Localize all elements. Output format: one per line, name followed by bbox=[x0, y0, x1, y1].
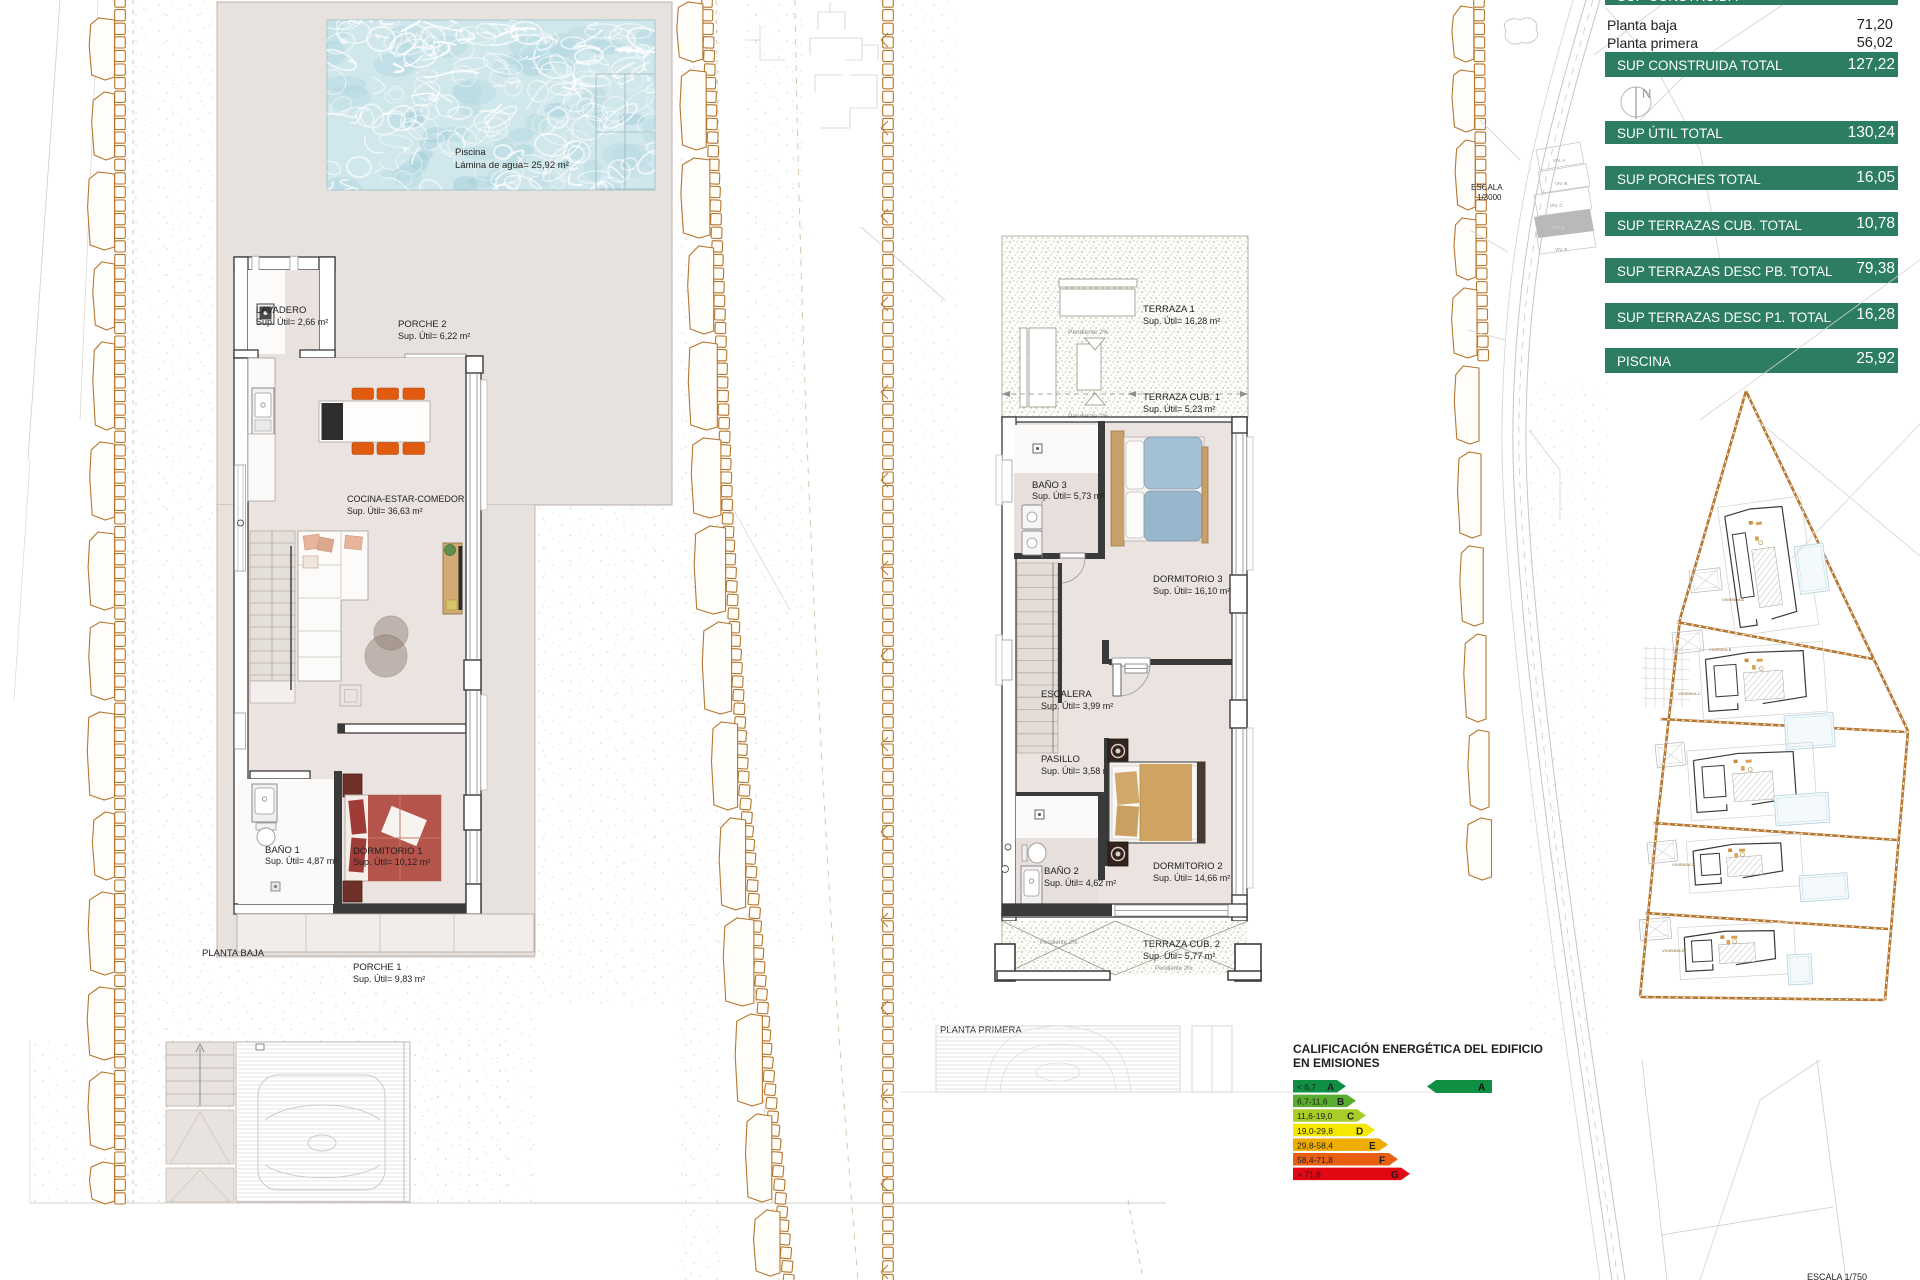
svg-text:56,02: 56,02 bbox=[1857, 35, 1893, 51]
svg-text:DORMITORIO 1: DORMITORIO 1 bbox=[353, 846, 423, 857]
svg-text:VIV. A: VIV. A bbox=[1553, 158, 1565, 163]
svg-text:E: E bbox=[1369, 1141, 1376, 1152]
svg-text:16,28: 16,28 bbox=[1856, 306, 1895, 323]
svg-text:< 6,7: < 6,7 bbox=[1297, 1082, 1316, 1092]
svg-text:Lámina de agua= 25,92 m²: Lámina de agua= 25,92 m² bbox=[455, 160, 569, 171]
svg-text:Planta primera: Planta primera bbox=[1607, 35, 1698, 51]
svg-text:SUP PORCHES TOTAL: SUP PORCHES TOTAL bbox=[1617, 172, 1761, 187]
svg-text:Pendiente 2%: Pendiente 2% bbox=[1040, 940, 1078, 946]
svg-text:EN EMISIONES: EN EMISIONES bbox=[1293, 1056, 1380, 1070]
svg-text:TERRAZA CUB. 2: TERRAZA CUB. 2 bbox=[1143, 939, 1220, 950]
svg-text:A: A bbox=[1478, 1083, 1485, 1094]
svg-text:SUP CONSTRUIDA TOTAL: SUP CONSTRUIDA TOTAL bbox=[1617, 58, 1783, 73]
svg-text:Sup. Útil= 5,23 m²: Sup. Útil= 5,23 m² bbox=[1143, 404, 1215, 414]
svg-text:Sup. Útil= 3,99 m²: Sup. Útil= 3,99 m² bbox=[1041, 701, 1113, 711]
svg-text:SUP TERRAZAS DESC P1. TOTAL: SUP TERRAZAS DESC P1. TOTAL bbox=[1617, 310, 1832, 325]
svg-text:VIVIENDA C: VIVIENDA C bbox=[1678, 691, 1701, 696]
svg-text:ESCALA: ESCALA bbox=[1471, 183, 1503, 192]
svg-text:Sup. Útil= 16,28 m²: Sup. Útil= 16,28 m² bbox=[1143, 316, 1220, 326]
svg-text:N: N bbox=[1642, 86, 1651, 101]
svg-text:19,0-29,8: 19,0-29,8 bbox=[1297, 1126, 1333, 1136]
svg-text:C: C bbox=[1347, 1112, 1354, 1123]
svg-text:Planta baja: Planta baja bbox=[1607, 17, 1677, 33]
svg-text:Sup. Útil= 3,58 m²: Sup. Útil= 3,58 m² bbox=[1041, 766, 1113, 776]
svg-text:VIV. D: VIV. D bbox=[1552, 225, 1565, 230]
svg-text:BAÑO 3: BAÑO 3 bbox=[1032, 480, 1067, 491]
svg-text:127,22: 127,22 bbox=[1848, 56, 1895, 73]
svg-text:Sup. Útil= 5,77 m²: Sup. Útil= 5,77 m² bbox=[1143, 951, 1215, 961]
svg-text:Sup. Útil= 9,83 m²: Sup. Útil= 9,83 m² bbox=[353, 974, 425, 984]
svg-text:D: D bbox=[1356, 1126, 1363, 1137]
svg-text:Sup. Útil= 6,22 m²: Sup. Útil= 6,22 m² bbox=[398, 331, 470, 341]
svg-text:> 71,8: > 71,8 bbox=[1297, 1170, 1321, 1180]
svg-text:29,8-58,4: 29,8-58,4 bbox=[1297, 1140, 1333, 1150]
svg-text:Pendiente 2%: Pendiente 2% bbox=[1155, 966, 1193, 972]
svg-text:Piscina: Piscina bbox=[455, 147, 486, 158]
svg-text:VIV. B: VIV. B bbox=[1555, 181, 1567, 186]
svg-text:CALIFICACIÓN ENERGÉTICA DEL ED: CALIFICACIÓN ENERGÉTICA DEL EDIFICIO bbox=[1293, 1041, 1543, 1056]
svg-text:TERRAZA CUB. 1: TERRAZA CUB. 1 bbox=[1143, 392, 1220, 403]
svg-text:VIVIENDA B: VIVIENDA B bbox=[1709, 647, 1732, 652]
svg-text:B: B bbox=[1337, 1097, 1344, 1108]
svg-text:Sup. Útil= 16,10 m²: Sup. Útil= 16,10 m² bbox=[1153, 586, 1230, 596]
svg-text:Sup. Útil= 5,73 m²: Sup. Útil= 5,73 m² bbox=[1032, 491, 1104, 501]
svg-text:Sup. Útil= 36,63 m²: Sup. Útil= 36,63 m² bbox=[347, 506, 423, 516]
svg-text:G: G bbox=[1391, 1170, 1399, 1181]
svg-text:A: A bbox=[1327, 1083, 1334, 1094]
svg-text:71,20: 71,20 bbox=[1857, 17, 1893, 33]
svg-text:VIV. C: VIV. C bbox=[1550, 203, 1563, 208]
svg-text:VIV. E: VIV. E bbox=[1555, 247, 1567, 252]
svg-text:Sup. Útil= 14,66 m²: Sup. Útil= 14,66 m² bbox=[1153, 873, 1230, 883]
svg-text:PASILLO: PASILLO bbox=[1041, 754, 1080, 765]
svg-text:79,38: 79,38 bbox=[1856, 260, 1895, 277]
svg-text:PLANTA BAJA: PLANTA BAJA bbox=[202, 948, 265, 959]
svg-text:1/3000: 1/3000 bbox=[1477, 193, 1502, 202]
svg-text:VIVIENDA E: VIVIENDA E bbox=[1662, 948, 1685, 953]
svg-text:SUP CONSTRUIDA: SUP CONSTRUIDA bbox=[1617, 0, 1738, 4]
svg-text:Pendiente 2%: Pendiente 2% bbox=[1068, 329, 1109, 336]
svg-text:10,78: 10,78 bbox=[1856, 215, 1895, 232]
svg-text:TERRAZA 1: TERRAZA 1 bbox=[1143, 304, 1195, 315]
svg-text:SUP TERRAZAS CUB. TOTAL: SUP TERRAZAS CUB. TOTAL bbox=[1617, 218, 1802, 233]
svg-text:COCINA-ESTAR-COMEDOR: COCINA-ESTAR-COMEDOR bbox=[347, 494, 465, 504]
svg-text:DORMITORIO 2: DORMITORIO 2 bbox=[1153, 861, 1223, 872]
svg-text:Sup. Útil= 2,66 m²: Sup. Útil= 2,66 m² bbox=[256, 317, 328, 327]
svg-text:Sup. Útil= 4,87 m²: Sup. Útil= 4,87 m² bbox=[265, 856, 337, 866]
svg-text:F: F bbox=[1379, 1156, 1385, 1167]
svg-text:ESCALA 1/750: ESCALA 1/750 bbox=[1807, 1272, 1867, 1280]
svg-text:Sup. Útil= 10,12 m²: Sup. Útil= 10,12 m² bbox=[353, 857, 430, 867]
svg-text:6,7-11,6: 6,7-11,6 bbox=[1297, 1097, 1328, 1107]
svg-text:SUP ÚTIL TOTAL: SUP ÚTIL TOTAL bbox=[1617, 126, 1723, 141]
svg-text:SUP TERRAZAS DESC PB. TOTAL: SUP TERRAZAS DESC PB. TOTAL bbox=[1617, 264, 1833, 279]
svg-text:VIVIENDA A: VIVIENDA A bbox=[1722, 597, 1744, 602]
svg-text:PORCHE 1: PORCHE 1 bbox=[353, 962, 402, 973]
svg-text:PISCINA: PISCINA bbox=[1617, 354, 1671, 369]
svg-text:16,05: 16,05 bbox=[1856, 169, 1895, 186]
svg-text:130,24: 130,24 bbox=[1848, 124, 1896, 141]
svg-text:58,4-71,8: 58,4-71,8 bbox=[1297, 1155, 1333, 1165]
svg-text:BAÑO 1: BAÑO 1 bbox=[265, 845, 300, 856]
svg-text:ESCALERA: ESCALERA bbox=[1041, 689, 1092, 700]
svg-text:DORMITORIO 3: DORMITORIO 3 bbox=[1153, 574, 1223, 585]
svg-text:BAÑO 2: BAÑO 2 bbox=[1044, 866, 1079, 877]
svg-text:Sup. Útil= 4,62 m²: Sup. Útil= 4,62 m² bbox=[1044, 878, 1116, 888]
svg-text:PORCHE 2: PORCHE 2 bbox=[398, 319, 447, 330]
svg-text:11,6-19,0: 11,6-19,0 bbox=[1297, 1111, 1333, 1121]
svg-text:VIVIENDA D: VIVIENDA D bbox=[1672, 862, 1695, 867]
svg-text:LAVADERO: LAVADERO bbox=[256, 305, 306, 316]
svg-text:25,92: 25,92 bbox=[1856, 350, 1895, 367]
